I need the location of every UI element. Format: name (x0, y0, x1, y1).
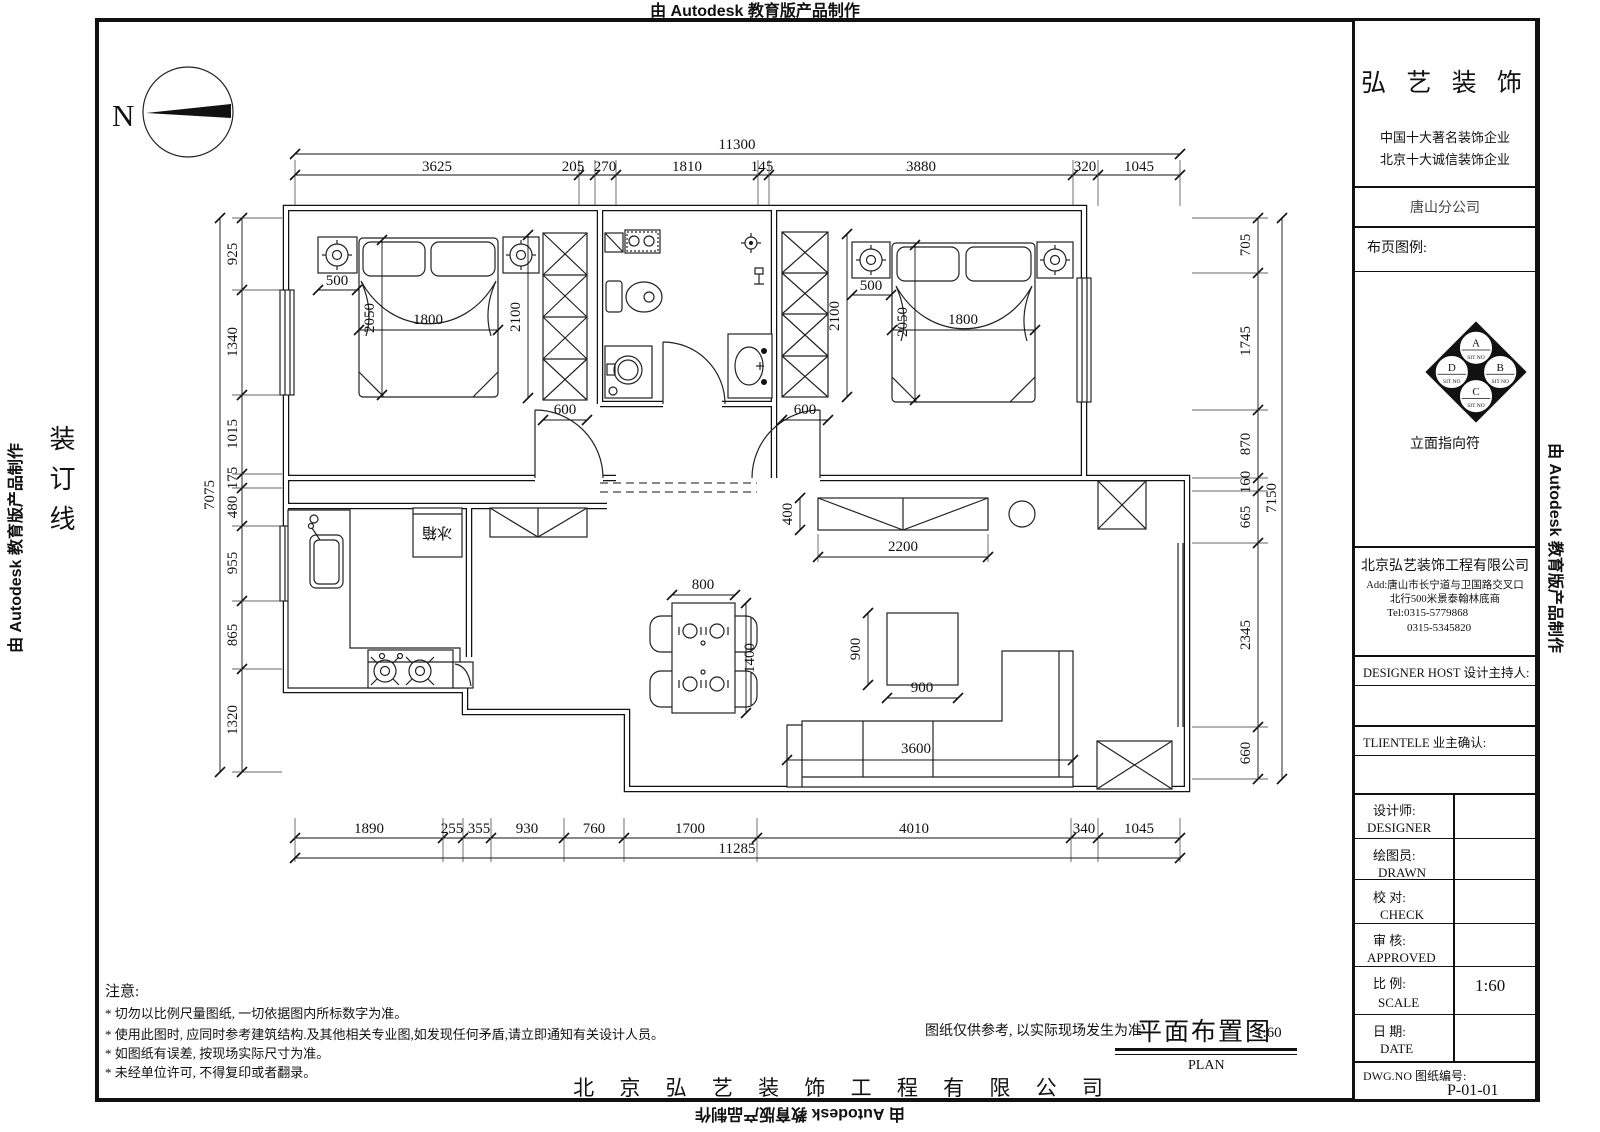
autodesk-banner-right: 由 Autodesk 教育版产品制作 (1545, 443, 1569, 653)
autodesk-banner-left: 由 Autodesk 教育版产品制作 (2, 443, 26, 653)
company-name-footer: 北 京 弘 艺 装 饰 工 程 有 限 公 司 (573, 1072, 1113, 1102)
elev-d: D (1448, 362, 1456, 374)
note-item: * 切勿以比例尺量图纸, 一切依据图内所标数字为准。 (105, 1004, 407, 1024)
row-en-designer: DESIGNER (1367, 820, 1431, 836)
elev-sit: SIT NO (1467, 355, 1484, 361)
row-cn-designer: 设计师: (1373, 800, 1416, 819)
drawing-sheet: N (0, 0, 1600, 1132)
row-cn-scale: 比 例: (1373, 973, 1406, 992)
elev-sit: SIT NO (1491, 379, 1508, 385)
title-underline (1115, 1048, 1297, 1051)
row-en-scale: SCALE (1378, 995, 1419, 1011)
company-tel-1: Tel:0315-5779868 (1387, 607, 1468, 619)
elev-b: B (1497, 362, 1504, 374)
title-block: 弘 艺 装 饰 中国十大著名装饰企业 北京十大诚信装饰企业 唐山分公司 布页图例… (1352, 18, 1538, 1102)
legend-header: 布页图例: (1367, 237, 1427, 257)
sheet-border (95, 18, 1540, 1102)
slogan-2: 北京十大诚信装饰企业 (1355, 149, 1535, 168)
dwg-no-value: P-01-01 (1447, 1082, 1499, 1100)
row-en-approved: APPROVED (1367, 950, 1436, 966)
company-tel-2: 0315-5345820 (1407, 622, 1471, 634)
company-address-2: 北行500米景泰翰林底商 (1355, 591, 1535, 606)
client-confirm-label: TLIENTELE 业主确认: (1363, 732, 1486, 751)
elev-sit: SIT NO (1467, 403, 1484, 409)
branch-name: 唐山分公司 (1355, 197, 1535, 217)
drawing-scale: 1:60 (1255, 1025, 1282, 1042)
binding-line-label: 装订线 (42, 425, 79, 545)
elevation-caption: 立面指向符 (1355, 433, 1535, 453)
row-cn-approved: 审 核: (1373, 930, 1406, 949)
row-en-check: CHECK (1380, 907, 1424, 923)
row-cn-date: 日 期: (1373, 1021, 1406, 1040)
drawing-title-en: PLAN (1188, 1058, 1225, 1074)
autodesk-banner-bottom: 由 Autodesk 教育版产品制作 (695, 1104, 905, 1128)
designer-host-label: DESIGNER HOST 设计主持人: (1363, 662, 1529, 681)
elev-sit: SIT NO (1443, 379, 1460, 385)
slogan-1: 中国十大著名装饰企业 (1355, 127, 1535, 146)
company-name: 北京弘艺装饰工程有限公司 (1355, 555, 1535, 575)
elev-c: C (1472, 386, 1479, 398)
drawing-title: 平面布置图 (1137, 1012, 1272, 1048)
disclaimer: 图纸仅供参考, 以实际现场发生为准 (925, 1020, 1142, 1040)
note-item: * 如图纸有误差, 按现场实际尺寸为准。 (105, 1044, 329, 1064)
scale-value: 1:60 (1475, 976, 1505, 996)
note-item: * 未经单位许可, 不得复印或者翻录。 (105, 1063, 316, 1083)
row-cn-drawn: 绘图员: (1373, 845, 1416, 864)
elev-a: A (1472, 338, 1480, 350)
company-brand: 弘 艺 装 饰 (1355, 63, 1535, 99)
row-en-date: DATE (1380, 1041, 1413, 1057)
row-cn-check: 校 对: (1373, 887, 1406, 906)
elevation-symbol: A B C D SIT NO SIT NO SIT NO SIT NO (1421, 317, 1531, 427)
autodesk-banner-top: 由 Autodesk 教育版产品制作 (650, 0, 860, 21)
title-underline-thin (1115, 1054, 1297, 1055)
notes-title: 注意: (105, 980, 139, 1001)
company-address-1: Add:唐山市长宁道与卫国路交叉口 (1355, 577, 1535, 592)
note-item: * 使用此图时, 应同时参考建筑结构.及其他相关专业图,如发现任何矛盾,请立即通… (105, 1025, 664, 1045)
